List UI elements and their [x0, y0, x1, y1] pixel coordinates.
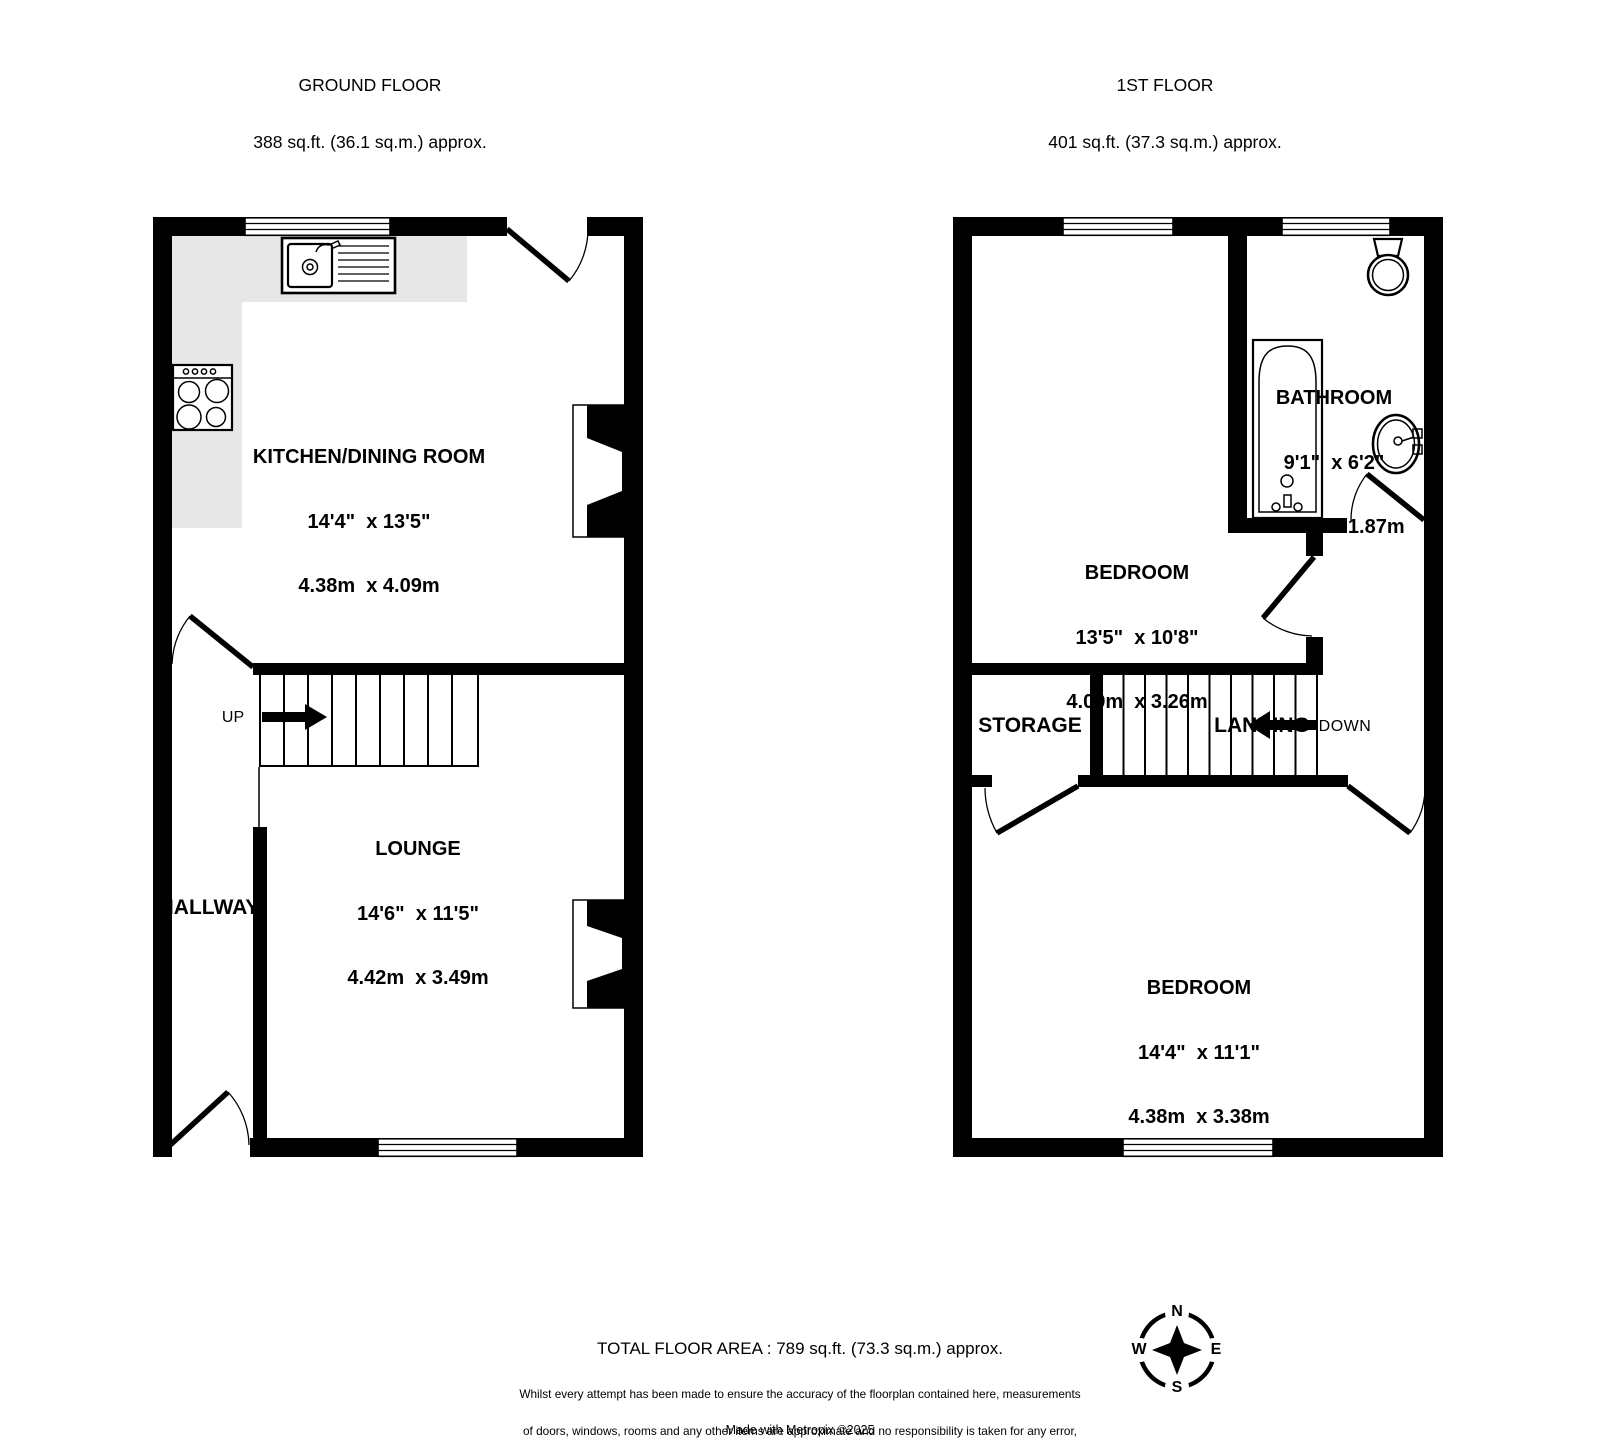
floorplan-page: GROUND FLOOR 388 sq.ft. (36.1 sq.m.) app…: [0, 0, 1600, 1438]
down-arrow-icon: [0, 0, 1600, 1438]
